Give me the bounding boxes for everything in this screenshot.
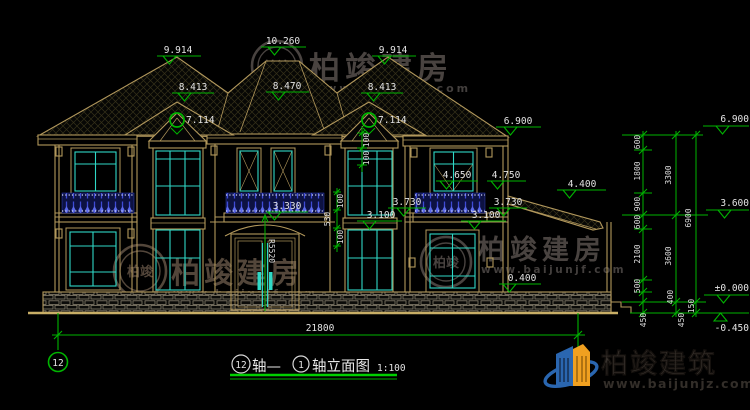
left-eave	[38, 135, 137, 145]
elevation-drawing: 柏竣 柏竣建房 www.baijunjf.com 柏竣 柏竣建房 www.bai…	[0, 0, 750, 410]
dim-door-radius: R5520	[267, 239, 276, 263]
mark-gable-right: 8.413	[368, 82, 397, 93]
svg-text:3300: 3300	[664, 165, 673, 184]
watermark-brand: 柏竣建房	[171, 256, 303, 290]
svg-text:1800: 1800	[633, 161, 642, 180]
mark-ridge-left: 9.914	[164, 45, 193, 56]
mark-slab-right: 3.100	[472, 210, 501, 221]
mark-turret-right: 7.114	[378, 115, 407, 126]
svg-text:150: 150	[687, 299, 696, 314]
title-connector: 轴—	[252, 358, 281, 375]
dim-100: 100	[362, 133, 371, 148]
brand-logo: 柏竣建筑 www.baijunjz.com	[542, 344, 750, 391]
title-name: 轴立面图	[312, 358, 370, 375]
chain-level-zero: ±0.000	[715, 283, 750, 294]
chain-level-ground: -0.450	[715, 323, 750, 334]
watermark-brand: 柏竣建房	[478, 234, 606, 266]
mark-ridge-right: 9.914	[379, 45, 408, 56]
svg-text:6900: 6900	[684, 208, 693, 227]
mark-turret-left: 7.114	[186, 115, 215, 126]
dim-100: 100	[336, 194, 345, 209]
chain-level-mid: 3.600	[720, 198, 749, 209]
svg-text:900: 900	[633, 197, 642, 212]
dim-100: 100	[336, 230, 345, 245]
logo-url: www.baijunjz.com	[603, 376, 750, 391]
side-steps	[611, 296, 631, 313]
svg-text:600: 600	[633, 135, 642, 150]
chain-level-top: 6.900	[720, 114, 749, 125]
svg-text:400: 400	[666, 290, 675, 305]
mark-porch-roof: 4.400	[568, 179, 597, 190]
mark-slab-left: 3.100	[367, 210, 396, 221]
stone-plinth	[43, 292, 611, 313]
turret-right-window-lower	[348, 230, 392, 290]
svg-text:450: 450	[677, 313, 686, 328]
title-axis-to: 1	[298, 360, 304, 371]
mark-rail-right: 3.730	[494, 197, 523, 208]
door-handle-right	[269, 272, 273, 290]
svg-text:600: 600	[633, 215, 642, 230]
title-scale: 1:100	[377, 363, 406, 374]
door-handle-left	[258, 272, 262, 290]
right-eave	[403, 136, 508, 146]
mark-ridge-center: 10.260	[266, 36, 301, 47]
svg-text:3600: 3600	[664, 246, 673, 265]
dim-100: 100	[362, 151, 371, 166]
cad-elevation-screenshot: 柏竣 柏竣建房 www.baijunjf.com 柏竣 柏竣建房 www.bai…	[0, 0, 750, 410]
title-axis-from: 12	[235, 360, 246, 371]
dim-530: 530	[323, 212, 332, 227]
drawing-title: 12 轴— 1 轴立面图 1:100	[230, 355, 406, 379]
svg-text:450: 450	[639, 313, 648, 328]
mark-window-head: 4.750	[492, 170, 521, 181]
mark-eave-right: 6.900	[504, 116, 533, 127]
mark-gable-center: 8.470	[273, 81, 302, 92]
mark-rail-left: 3.730	[393, 197, 422, 208]
right-dimension-chain: 6.900 3.600 ±0.000 -0.450 600 1800 900 6…	[622, 114, 749, 334]
watermark-monogram: 柏竣	[127, 264, 154, 280]
mark-window-sill: 4.650	[443, 170, 472, 181]
railing-left	[62, 193, 134, 213]
mark-balcony-center: 3.330	[273, 201, 302, 212]
mark-gable-left: 8.413	[179, 82, 208, 93]
mark-plinth: 0.400	[508, 273, 537, 284]
turret-left-window-upper	[156, 151, 200, 215]
watermark-monogram: 柏竣	[433, 255, 460, 271]
svg-text:500: 500	[633, 279, 642, 294]
svg-text:2100: 2100	[633, 244, 642, 263]
chain-segment-labels: 600 1800 900 600 2100 500 450 3300 3600 …	[633, 135, 696, 328]
axis-bubble-label: 12	[52, 358, 63, 369]
dim-total-width: 21800	[306, 323, 335, 334]
